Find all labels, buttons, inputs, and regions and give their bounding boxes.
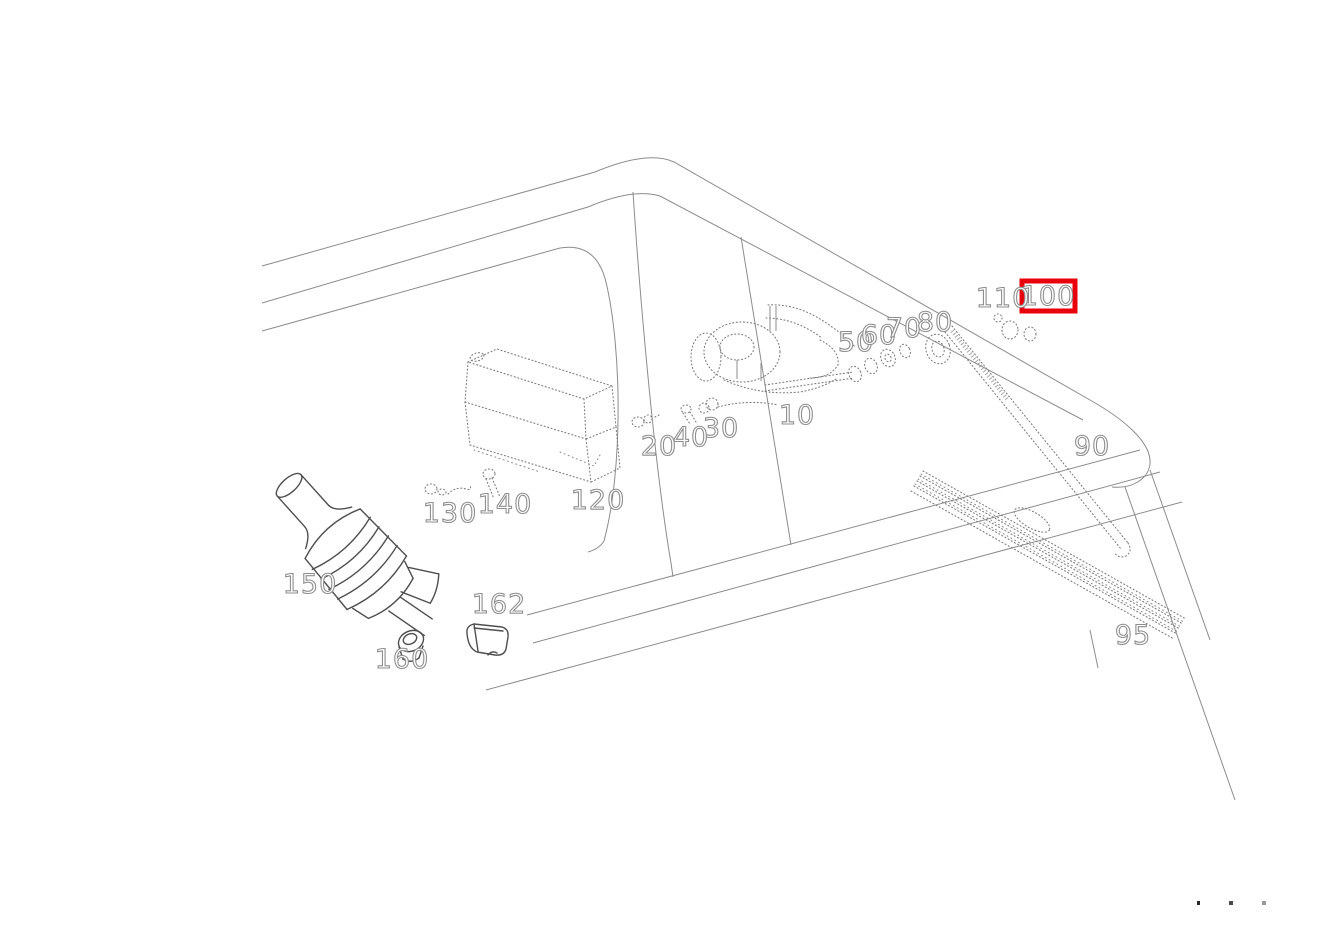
part-label-10[interactable]: 10 — [779, 400, 815, 431]
part-label-40[interactable]: 40 — [673, 422, 709, 453]
part-label-150[interactable]: 150 — [283, 569, 338, 600]
washer-pump — [255, 445, 463, 662]
part-label-140[interactable]: 140 — [478, 489, 533, 520]
part-label-95[interactable]: 95 — [1115, 620, 1151, 651]
part-label-110[interactable]: 110 — [976, 283, 1031, 314]
wiper-blade — [911, 471, 1186, 639]
parts-diagram-page: 10 20 30 40 50 60 70 80 90 95 100 110 12… — [0, 0, 1326, 951]
parts-diagram-canvas: 10 20 30 40 50 60 70 80 90 95 100 110 12… — [0, 0, 1326, 951]
retaining-clip — [467, 624, 508, 655]
wiper-motor-assembly — [691, 305, 855, 393]
part-labels: 10 20 30 40 50 60 70 80 90 95 100 110 12… — [283, 281, 1151, 675]
part-label-90[interactable]: 90 — [1074, 431, 1110, 462]
part-label-120[interactable]: 120 — [571, 485, 626, 516]
vehicle-body-outline — [262, 158, 1235, 800]
part-label-20[interactable]: 20 — [641, 431, 677, 462]
part-label-80[interactable]: 80 — [917, 307, 953, 338]
washer-reservoir — [465, 349, 620, 482]
footer-dots — [1197, 901, 1266, 905]
part-label-160[interactable]: 160 — [375, 644, 430, 675]
part-label-130[interactable]: 130 — [423, 498, 478, 529]
part-label-162[interactable]: 162 — [472, 589, 527, 620]
